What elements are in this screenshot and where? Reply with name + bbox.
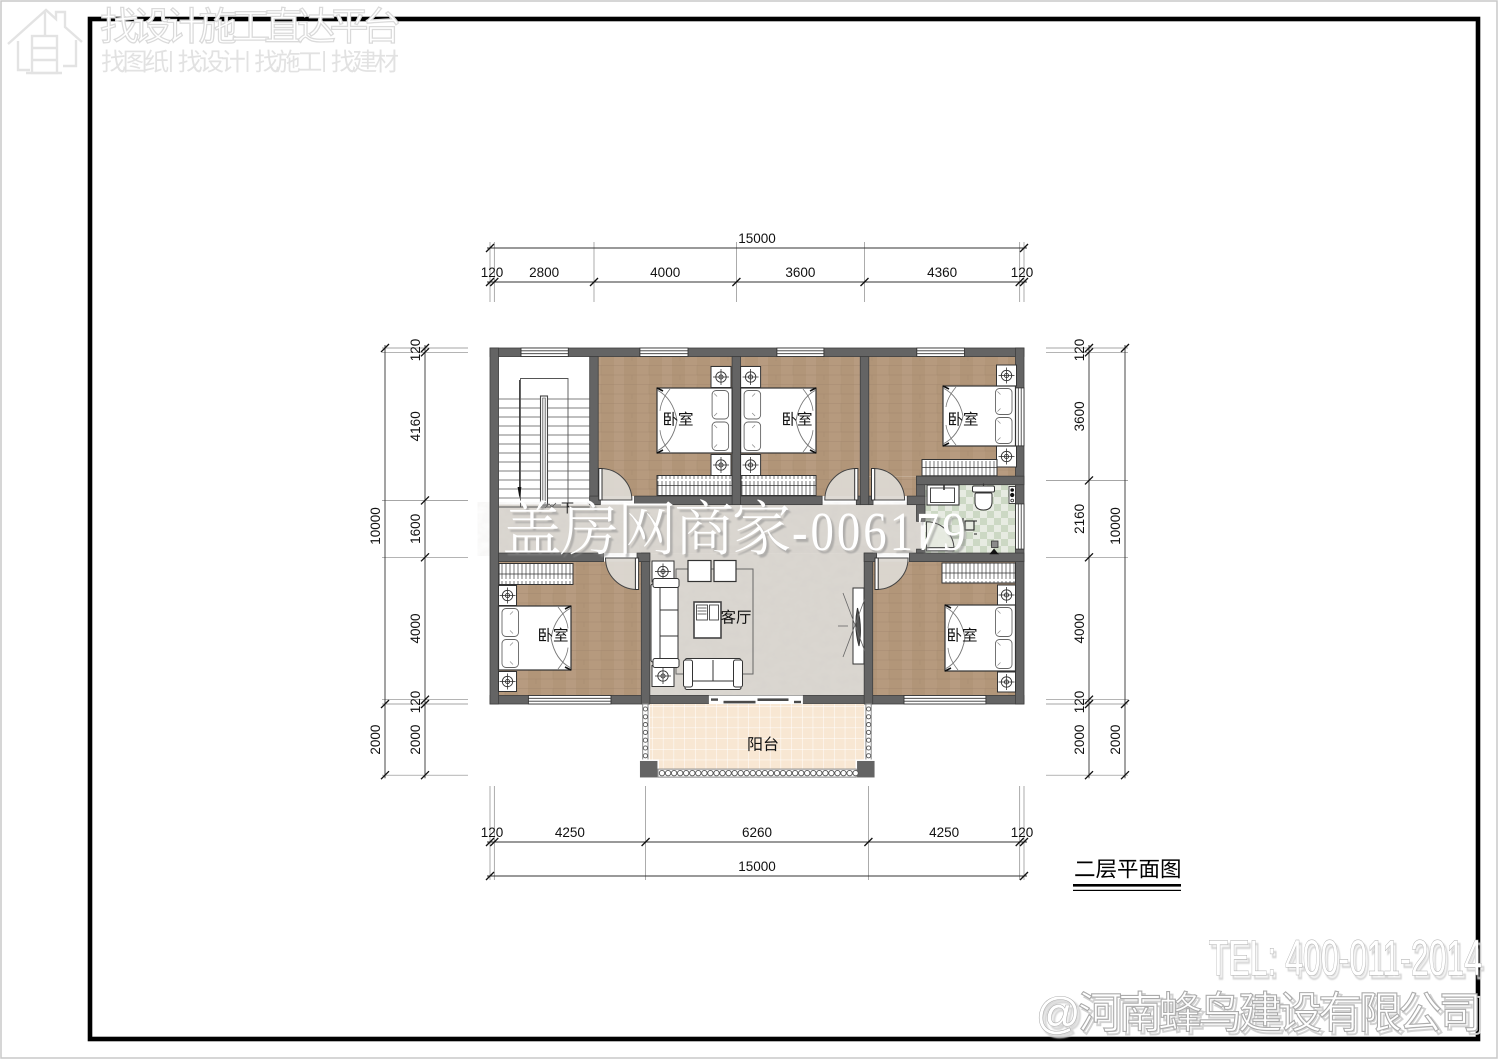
svg-text:120: 120 xyxy=(1072,339,1087,362)
svg-text:2160: 2160 xyxy=(1072,504,1087,534)
svg-text:10000: 10000 xyxy=(1108,507,1123,545)
svg-text:3600: 3600 xyxy=(785,265,815,280)
svg-text:3600: 3600 xyxy=(1072,401,1087,431)
svg-text:2000: 2000 xyxy=(1108,725,1123,755)
svg-text:2000: 2000 xyxy=(368,725,383,755)
svg-text:1600: 1600 xyxy=(408,514,423,544)
svg-text:4250: 4250 xyxy=(929,825,959,840)
svg-text:4160: 4160 xyxy=(408,411,423,441)
svg-text:4250: 4250 xyxy=(555,825,585,840)
svg-text:120: 120 xyxy=(481,825,504,840)
svg-text:120: 120 xyxy=(1011,825,1034,840)
svg-text:120: 120 xyxy=(481,265,504,280)
svg-text:TEL: 400-011-2014: TEL: 400-011-2014 xyxy=(1209,930,1482,986)
svg-text:4360: 4360 xyxy=(927,265,957,280)
svg-text:-006179: -006179 xyxy=(792,503,969,563)
svg-text:120: 120 xyxy=(1011,265,1034,280)
svg-text:120: 120 xyxy=(1072,691,1087,714)
svg-text:2000: 2000 xyxy=(1072,725,1087,755)
svg-text:120: 120 xyxy=(408,339,423,362)
svg-text:4000: 4000 xyxy=(1072,613,1087,643)
svg-text:2800: 2800 xyxy=(529,265,559,280)
svg-text:10000: 10000 xyxy=(368,507,383,545)
svg-text:6260: 6260 xyxy=(742,825,772,840)
svg-text:2000: 2000 xyxy=(408,725,423,755)
svg-text:4000: 4000 xyxy=(408,613,423,643)
svg-text:15000: 15000 xyxy=(738,231,776,246)
svg-text:@: @ xyxy=(1036,989,1081,1038)
svg-text:4000: 4000 xyxy=(650,265,680,280)
svg-text:120: 120 xyxy=(408,691,423,714)
svg-text:15000: 15000 xyxy=(738,859,776,874)
